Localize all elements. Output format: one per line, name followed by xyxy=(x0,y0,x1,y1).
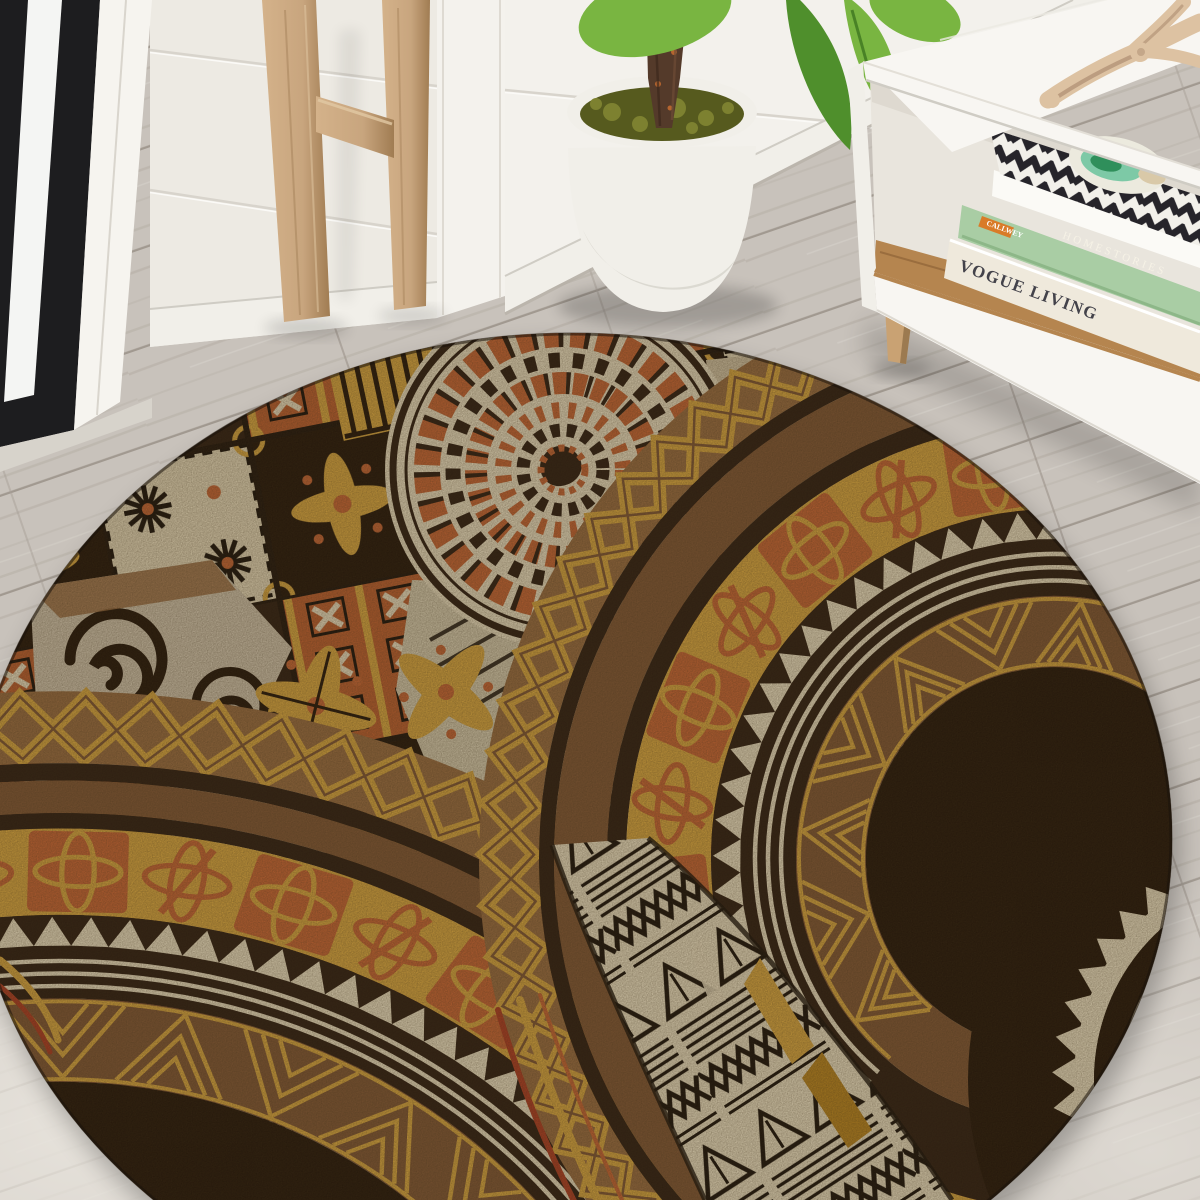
ladder-shadow xyxy=(264,319,348,337)
wall-corner-trim xyxy=(437,0,505,318)
scene-canvas: Round Polynesian tapa patchwork area rug… xyxy=(0,0,1200,1200)
scene-photo: Round Polynesian tapa patchwork area rug… xyxy=(0,0,1200,1200)
ladder-shadow xyxy=(378,308,446,324)
